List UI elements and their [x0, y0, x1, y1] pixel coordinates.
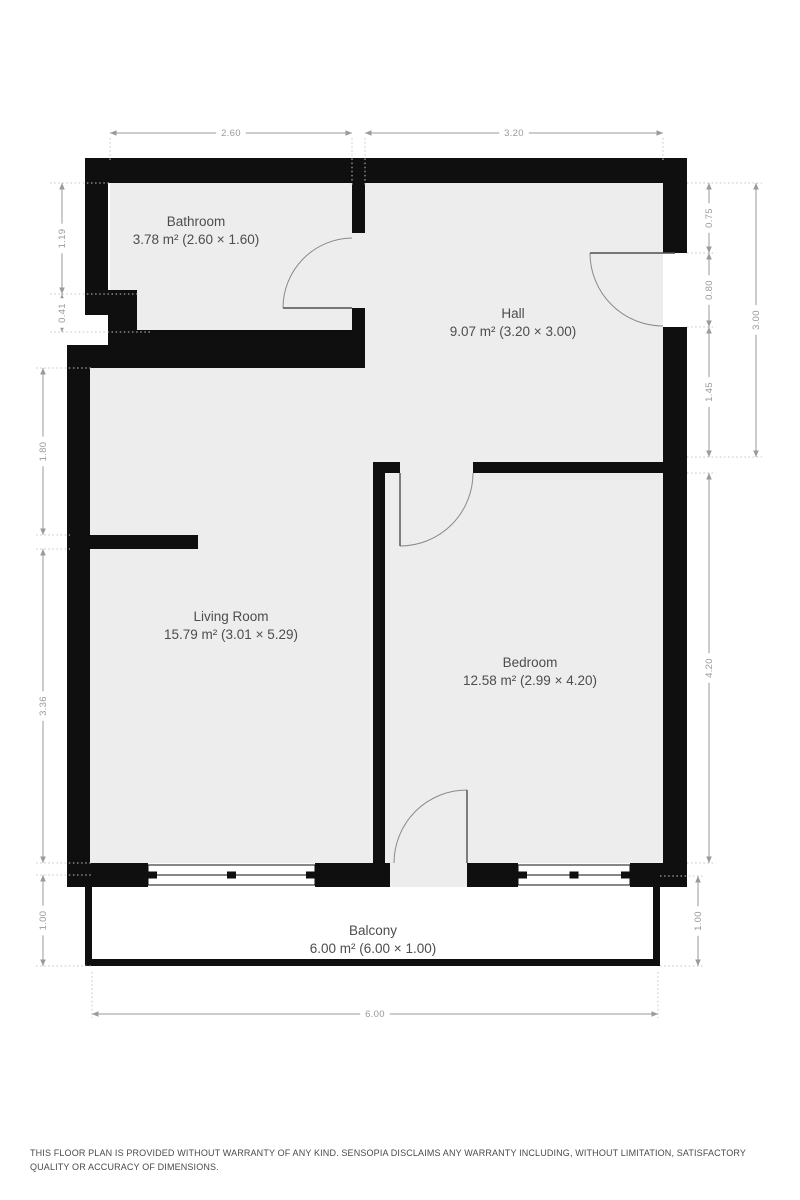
living-room-name: Living Room: [193, 609, 268, 624]
hall-area: 9.07 m² (3.20 × 3.00): [450, 324, 576, 339]
dimension-3.20: 3.20: [365, 128, 663, 140]
wall-right-lower: [663, 327, 687, 887]
wall-bottom-1: [67, 863, 148, 887]
dimension-4.20: 4.20: [704, 473, 716, 863]
balcony-wall-right: [653, 887, 660, 966]
dimension-1.45: 1.45: [704, 327, 716, 457]
dimension-label: 1.00: [693, 911, 704, 931]
dimension-label: 1.00: [38, 911, 49, 931]
dimension-label: 1.45: [704, 382, 715, 402]
bathroom-floor-lower: [137, 290, 352, 330]
dimension-label: 6.00: [365, 1009, 385, 1020]
balcony-name: Balcony: [349, 923, 397, 938]
wall-left-living: [67, 345, 90, 887]
living-room-window: [148, 865, 315, 885]
dimension-1.00: 1.00: [38, 875, 50, 966]
dimension-label: 3.36: [38, 696, 49, 716]
dimension-label: 0.80: [704, 280, 715, 300]
dimension-3.36: 3.36: [38, 549, 50, 863]
dimension-label: 0.75: [704, 208, 715, 228]
wall-right-upper: [663, 158, 687, 253]
wall-top: [85, 158, 687, 183]
bathroom-door-opening: [352, 233, 365, 308]
wall-bath-hall-divider-lower: [352, 308, 365, 332]
dimension-6.00: 6.00: [92, 1009, 658, 1021]
bathroom-name: Bathroom: [167, 214, 226, 229]
balcony-wall-left: [85, 887, 92, 966]
dimension-label: 1.19: [57, 229, 68, 249]
hall-floor: [365, 183, 663, 462]
hall-name: Hall: [501, 306, 524, 321]
dimension-label: 4.20: [704, 658, 715, 678]
dimension-label: 1.80: [38, 442, 49, 462]
entrance-door-opening: [663, 253, 687, 327]
dimension-1.19: 1.19: [57, 183, 69, 294]
wall-living-stub: [67, 535, 198, 549]
dimension-label: 3.00: [751, 310, 762, 330]
dimension-label: 0.41: [57, 303, 68, 323]
disclaimer-text: THIS FLOOR PLAN IS PROVIDED WITHOUT WARR…: [30, 1146, 768, 1175]
wall-living-bedroom-divider: [373, 462, 385, 863]
dimension-1.00: 1.00: [693, 876, 705, 966]
dimension-2.60: 2.60: [110, 128, 352, 140]
wall-bath-hall-divider-upper: [352, 158, 365, 233]
bedroom-name: Bedroom: [503, 655, 558, 670]
dimension-3.00: 3.00: [751, 183, 763, 457]
wall-bottom-4: [630, 863, 687, 887]
balcony-wall-bottom: [85, 959, 660, 966]
wall-hall-bedroom-right: [473, 462, 663, 473]
dimension-0.41: 0.41: [57, 294, 69, 332]
dimension-0.80: 0.80: [704, 253, 716, 327]
wall-bottom-3: [467, 863, 518, 887]
dimension-0.75: 0.75: [704, 183, 716, 253]
dimension-label: 2.60: [221, 128, 241, 139]
dimension-label: 3.20: [504, 128, 524, 139]
dimension-1.80: 1.80: [38, 368, 50, 535]
bedroom-door-opening: [400, 462, 473, 473]
bedroom-window: [518, 865, 630, 885]
balcony-door-opening: [390, 863, 467, 887]
bedroom-area: 12.58 m² (2.99 × 4.20): [463, 673, 597, 688]
wall-bottom-2: [315, 863, 390, 887]
living-room-area: 15.79 m² (3.01 × 5.29): [164, 627, 298, 642]
bathroom-area: 3.78 m² (2.60 × 1.60): [133, 232, 259, 247]
wall-living-top: [67, 345, 365, 368]
floor-plan-page: Bathroom 3.78 m² (2.60 × 1.60) Hall 9.07…: [0, 0, 800, 1200]
floor-plan-drawing: Bathroom 3.78 m² (2.60 × 1.60) Hall 9.07…: [0, 0, 800, 1200]
balcony-area: 6.00 m² (6.00 × 1.00): [310, 941, 436, 956]
